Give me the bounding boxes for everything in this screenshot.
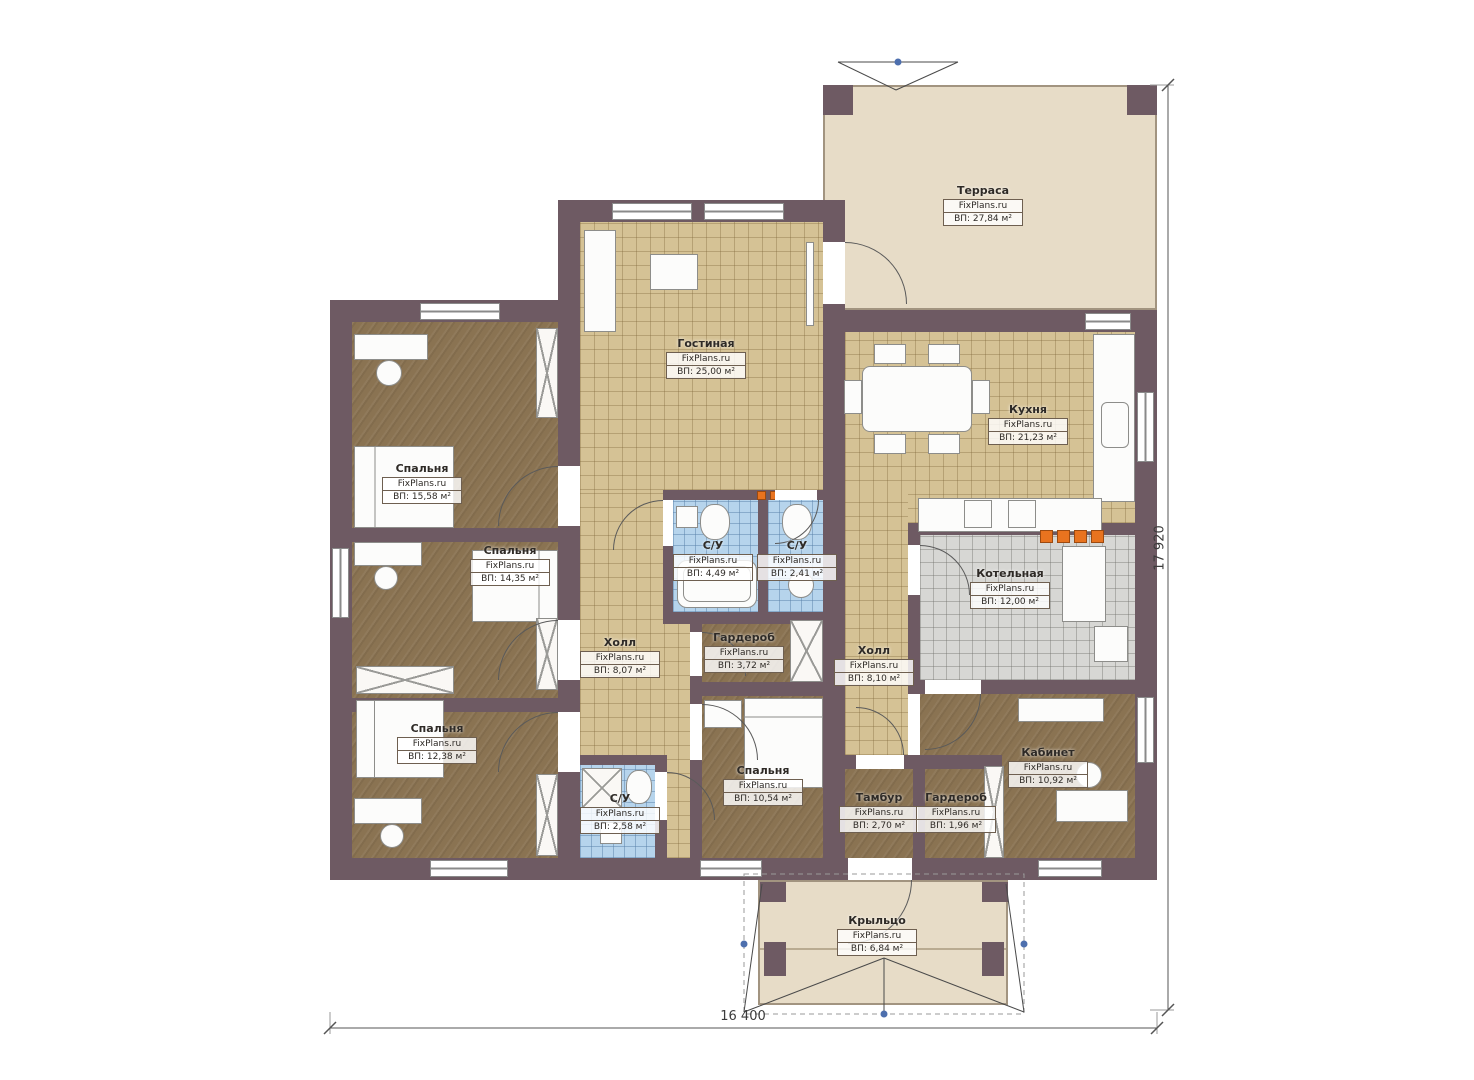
room-info-box: FixPlans.ru ВП: 12,38 м²: [397, 737, 477, 764]
area-label: ВП: 21,23 м²: [989, 432, 1067, 444]
room-name: Холл: [834, 644, 914, 657]
brand-label: FixPlans.ru: [944, 200, 1022, 213]
door-opening: [690, 632, 702, 676]
room-name: Холл: [580, 636, 660, 649]
area-label: ВП: 4,49 м²: [674, 568, 752, 580]
room-info-box: FixPlans.ru ВП: 27,84 м²: [943, 199, 1023, 226]
room-label-bathroom3: С/У FixPlans.ru ВП: 2,58 м²: [580, 792, 660, 834]
wardrobe: [536, 774, 558, 856]
brand-label: FixPlans.ru: [383, 478, 461, 491]
window: [612, 203, 692, 220]
floor-plan: Терраса FixPlans.ru ВП: 27,84 м² Гостина…: [0, 0, 1474, 1080]
room-label-porch: Крыльцо FixPlans.ru ВП: 6,84 м²: [837, 914, 917, 956]
room-label-kitchen: Кухня FixPlans.ru ВП: 21,23 м²: [988, 403, 1068, 445]
room-info-box: FixPlans.ru ВП: 4,49 м²: [673, 554, 753, 581]
toilet: [700, 504, 730, 540]
door-opening: [775, 490, 817, 500]
wall-lamp: [757, 491, 766, 500]
boiler-unit: [1062, 546, 1106, 622]
area-label: ВП: 15,58 м²: [383, 491, 461, 503]
desk: [1056, 790, 1128, 822]
room-name: Тамбур: [839, 791, 919, 804]
dimension-height: 17 920: [1153, 525, 1168, 571]
stove-burner: [1057, 530, 1070, 543]
room-info-box: FixPlans.ru ВП: 2,70 м²: [839, 806, 919, 833]
area-label: ВП: 27,84 м²: [944, 213, 1022, 225]
desk: [354, 334, 428, 360]
wardrobe: [790, 620, 823, 682]
terrace-pillar: [1127, 85, 1157, 115]
area-label: ВП: 6,84 м²: [838, 943, 916, 955]
room-label-hall2: Холл FixPlans.ru ВП: 8,10 м²: [834, 644, 914, 686]
coffee-table: [650, 254, 698, 290]
kitchen-sink: [1101, 402, 1129, 448]
room-name: Спальня: [382, 462, 462, 475]
appliance: [964, 500, 992, 528]
room-label-bedroom3: Спальня FixPlans.ru ВП: 12,38 м²: [397, 722, 477, 764]
brand-label: FixPlans.ru: [971, 583, 1049, 596]
room-name: Терраса: [943, 184, 1023, 197]
area-label: ВП: 25,00 м²: [667, 366, 745, 378]
entrance-door-opening: [848, 858, 912, 880]
room-name: С/У: [673, 539, 753, 552]
room-label-wardrobe2: Гардероб FixPlans.ru ВП: 1,96 м²: [916, 791, 996, 833]
room-info-box: FixPlans.ru ВП: 6,84 м²: [837, 929, 917, 956]
room-info-box: FixPlans.ru ВП: 15,58 м²: [382, 477, 462, 504]
room-info-box: FixPlans.ru ВП: 1,96 м²: [916, 806, 996, 833]
room-label-boiler: Котельная FixPlans.ru ВП: 12,00 м²: [970, 567, 1050, 609]
wardrobe: [356, 666, 454, 694]
stove-burner: [1091, 530, 1104, 543]
wall: [823, 332, 845, 858]
room-name: Спальня: [470, 544, 550, 557]
tv: [806, 242, 814, 326]
door-opening: [856, 755, 904, 769]
door-opening: [558, 620, 580, 680]
brand-label: FixPlans.ru: [1009, 762, 1087, 775]
room-label-living: Гостиная FixPlans.ru ВП: 25,00 м²: [666, 337, 746, 379]
brand-label: FixPlans.ru: [471, 560, 549, 573]
area-label: ВП: 10,54 м²: [724, 793, 802, 805]
sofa: [1018, 698, 1104, 722]
area-label: ВП: 2,41 м²: [758, 568, 836, 580]
wall: [580, 755, 655, 765]
brand-label: FixPlans.ru: [705, 647, 783, 660]
room-name: Спальня: [397, 722, 477, 735]
brand-label: FixPlans.ru: [917, 807, 995, 820]
brand-label: FixPlans.ru: [838, 930, 916, 943]
boiler-equipment: [1094, 626, 1128, 662]
desk: [354, 542, 422, 566]
door-opening: [558, 712, 580, 772]
stove-burner: [1074, 530, 1087, 543]
chair: [874, 434, 906, 454]
room-name: Спальня: [723, 764, 803, 777]
wardrobe: [536, 328, 558, 418]
room-name: Крыльцо: [837, 914, 917, 927]
room-info-box: FixPlans.ru ВП: 12,00 м²: [970, 582, 1050, 609]
brand-label: FixPlans.ru: [581, 652, 659, 665]
porch-pillar: [982, 882, 1008, 902]
room-info-box: FixPlans.ru ВП: 10,92 м²: [1008, 761, 1088, 788]
sink: [676, 506, 698, 528]
room-label-hall1: Холл FixPlans.ru ВП: 8,07 м²: [580, 636, 660, 678]
window: [420, 303, 500, 320]
room-label-bathroom2: С/У FixPlans.ru ВП: 2,41 м²: [757, 539, 837, 581]
brand-label: FixPlans.ru: [674, 555, 752, 568]
area-label: ВП: 12,00 м²: [971, 596, 1049, 608]
door-opening: [690, 704, 702, 760]
room-label-vestibule: Тамбур FixPlans.ru ВП: 2,70 м²: [839, 791, 919, 833]
room-info-box: FixPlans.ru ВП: 8,07 м²: [580, 651, 660, 678]
room-info-box: FixPlans.ru ВП: 2,41 м²: [757, 554, 837, 581]
area-label: ВП: 2,58 м²: [581, 821, 659, 833]
terrace-pillar: [823, 85, 853, 115]
wall: [352, 528, 558, 542]
room-name: Гостиная: [666, 337, 746, 350]
room-info-box: FixPlans.ru ВП: 25,00 м²: [666, 352, 746, 379]
room-name: Кабинет: [1008, 746, 1088, 759]
door-opening: [925, 680, 981, 694]
room-name: Котельная: [970, 567, 1050, 580]
area-label: ВП: 8,10 м²: [835, 673, 913, 685]
chair: [380, 824, 404, 848]
porch-pillar: [982, 942, 1004, 976]
room-name: С/У: [580, 792, 660, 805]
area-label: ВП: 3,72 м²: [705, 660, 783, 672]
door-opening: [908, 545, 920, 595]
brand-label: FixPlans.ru: [758, 555, 836, 568]
brand-label: FixPlans.ru: [840, 807, 918, 820]
room-name: Гардероб: [704, 631, 784, 644]
window: [1038, 860, 1102, 877]
window: [700, 860, 762, 877]
area-label: ВП: 2,70 м²: [840, 820, 918, 832]
room-info-box: FixPlans.ru ВП: 2,58 м²: [580, 807, 660, 834]
dimension-width: 16 400: [720, 1009, 766, 1024]
window: [1137, 392, 1154, 462]
desk: [354, 798, 422, 824]
window: [1137, 697, 1154, 763]
room-label-wardrobe1: Гардероб FixPlans.ru ВП: 3,72 м²: [704, 631, 784, 673]
brand-label: FixPlans.ru: [989, 419, 1067, 432]
sofa: [584, 230, 616, 332]
area-label: ВП: 12,38 м²: [398, 751, 476, 763]
door-opening: [558, 466, 580, 526]
window: [1085, 313, 1131, 330]
room-info-box: FixPlans.ru ВП: 8,10 м²: [834, 659, 914, 686]
room-label-study: Кабинет FixPlans.ru ВП: 10,92 м²: [1008, 746, 1088, 788]
chair: [844, 380, 862, 414]
chair: [928, 344, 960, 364]
window: [430, 860, 508, 877]
brand-label: FixPlans.ru: [581, 808, 659, 821]
chair: [376, 360, 402, 386]
chair: [374, 566, 398, 590]
porch-pillar: [760, 882, 786, 902]
brand-label: FixPlans.ru: [835, 660, 913, 673]
wall: [702, 682, 823, 696]
brand-label: FixPlans.ru: [724, 780, 802, 793]
chair: [874, 344, 906, 364]
area-label: ВП: 10,92 м²: [1009, 775, 1087, 787]
room-info-box: FixPlans.ru ВП: 14,35 м²: [470, 559, 550, 586]
room-info-box: FixPlans.ru ВП: 10,54 м²: [723, 779, 803, 806]
door-opening: [823, 242, 845, 304]
appliance: [1008, 500, 1036, 528]
window: [332, 548, 349, 618]
dining-table: [862, 366, 972, 432]
room-name: Кухня: [988, 403, 1068, 416]
area-label: ВП: 1,96 м²: [917, 820, 995, 832]
room-info-box: FixPlans.ru ВП: 21,23 м²: [988, 418, 1068, 445]
stove-burner: [1040, 530, 1053, 543]
chair: [928, 434, 960, 454]
room-label-bedroom2: Спальня FixPlans.ru ВП: 14,35 м²: [470, 544, 550, 586]
room-label-bedroom1: Спальня FixPlans.ru ВП: 15,58 м²: [382, 462, 462, 504]
door-opening: [663, 500, 673, 546]
room-name: Гардероб: [916, 791, 996, 804]
room-info-box: FixPlans.ru ВП: 3,72 м²: [704, 646, 784, 673]
area-label: ВП: 8,07 м²: [581, 665, 659, 677]
brand-label: FixPlans.ru: [398, 738, 476, 751]
window: [704, 203, 784, 220]
wall: [558, 200, 845, 222]
room-label-bedroom4: Спальня FixPlans.ru ВП: 10,54 м²: [723, 764, 803, 806]
area-label: ВП: 14,35 м²: [471, 573, 549, 585]
room-name: С/У: [757, 539, 837, 552]
room-label-bathroom1: С/У FixPlans.ru ВП: 4,49 м²: [673, 539, 753, 581]
porch-pillar: [764, 942, 786, 976]
room-label-terrace: Терраса FixPlans.ru ВП: 27,84 м²: [943, 184, 1023, 226]
brand-label: FixPlans.ru: [667, 353, 745, 366]
